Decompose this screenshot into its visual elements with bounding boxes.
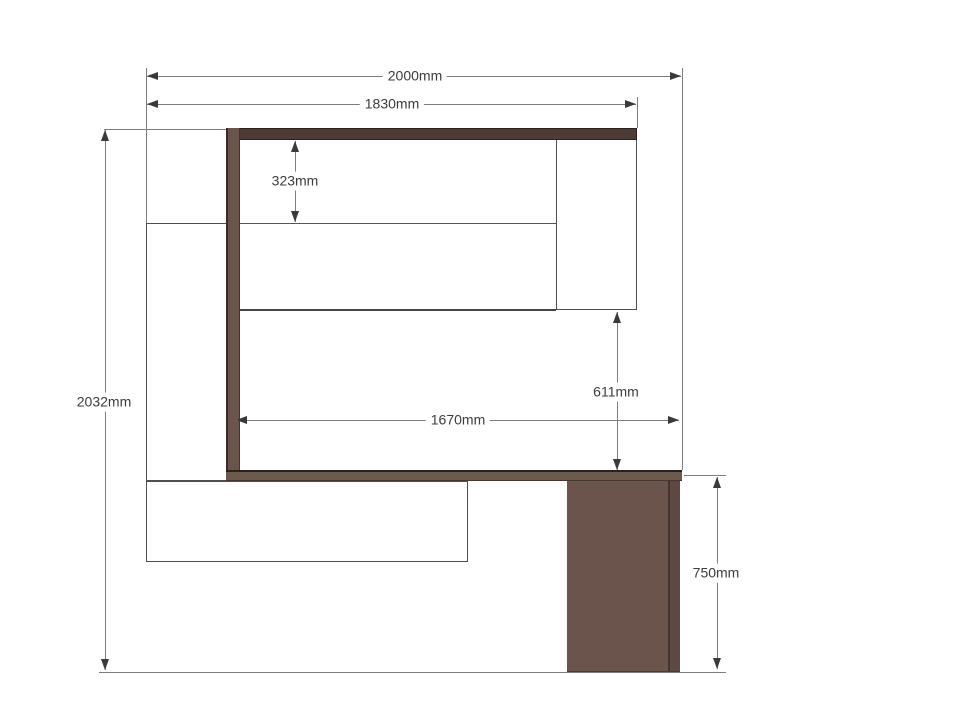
dim-overall-width-arrow-right-icon: [670, 72, 681, 80]
dim-desk-height-label: 750mm: [688, 564, 745, 583]
dim-overall-height-extension-bottom: [99, 672, 726, 673]
desk-top-panel: [226, 470, 682, 481]
dim-overall-width-extension-right: [682, 68, 683, 470]
furniture-dimension-drawing: 2000mm 1830mm 323mm 2032mm 1670mm 611mm …: [0, 0, 970, 728]
dim-upper-width-extension-right: [637, 97, 638, 128]
dim-desk-height-arrow-down-icon: [713, 658, 721, 669]
under-desk-drawer-panel: [146, 481, 468, 562]
dim-clearance-height-arrow-up-icon: [613, 312, 621, 323]
right-cabinet-panel: [556, 139, 637, 310]
desk-leg-panel: [567, 481, 680, 672]
dim-upper-width-arrow-left-icon: [147, 100, 158, 108]
dim-overall-width-extension-left: [146, 68, 147, 223]
dim-overall-height-arrow-up-icon: [101, 130, 109, 141]
dim-overall-height-label: 2032mm: [72, 393, 136, 412]
shelf-edge-upper-line: [240, 223, 556, 224]
shelf-edge-lower-line: [240, 309, 556, 311]
dim-inner-width-arrow-right-icon: [668, 416, 679, 424]
dim-upper-width-arrow-right-icon: [625, 100, 636, 108]
dim-inner-width-label: 1670mm: [426, 411, 490, 430]
dim-inset-height-arrow-up-icon: [291, 141, 299, 152]
dim-overall-height-arrow-down-icon: [101, 659, 109, 670]
dim-inset-height-arrow-down-icon: [291, 211, 299, 222]
dim-overall-width-arrow-left-icon: [147, 72, 158, 80]
dim-overall-width-label: 2000mm: [383, 67, 447, 86]
dim-upper-width-label: 1830mm: [360, 95, 424, 114]
headboard-side-panel: [146, 223, 227, 481]
dim-clearance-height-arrow-down-icon: [613, 459, 621, 470]
dim-desk-height-extension-top: [684, 475, 726, 476]
dim-inset-height-label: 323mm: [267, 172, 324, 191]
top-rail-panel: [226, 128, 637, 140]
dim-inner-width-arrow-left-icon: [236, 416, 247, 424]
dim-desk-height-arrow-up-icon: [713, 477, 721, 488]
dim-clearance-height-label: 611mm: [588, 383, 644, 402]
left-side-rail-panel: [226, 128, 240, 481]
dim-overall-height-extension-top: [104, 129, 226, 130]
